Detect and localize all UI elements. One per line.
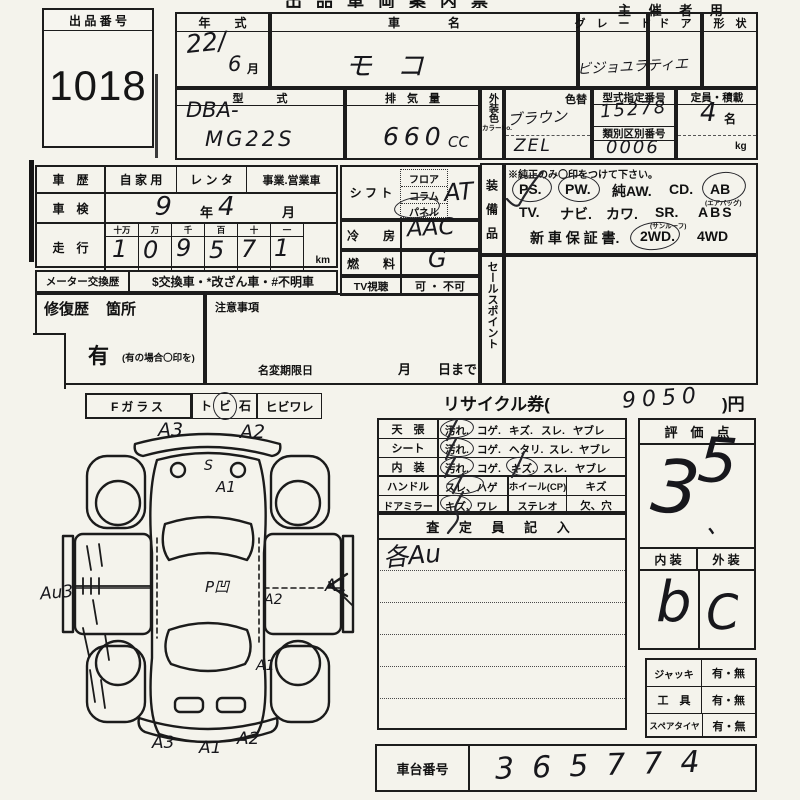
year-month-value: 6: [228, 52, 241, 76]
inspection-month-value: 4: [218, 192, 235, 222]
shift-floor: フロア: [401, 170, 447, 187]
tv-value: 可 ・ 不可: [400, 278, 478, 294]
diagram-side-au3: Au3: [39, 582, 74, 605]
mileage-label: 走 行: [37, 224, 106, 270]
inspection-month-unit: 月: [282, 202, 295, 221]
scan-artifact-line: [155, 74, 158, 158]
meter-row: メーター交換歴 $交換車・*改ざん車・#不明車: [35, 270, 338, 293]
interior-grade-value: b: [656, 570, 692, 635]
cropped-title: 出品車両案内票: [285, 0, 545, 8]
year-value: 22/: [185, 26, 228, 59]
grade-label: グ レ ー ド: [580, 14, 646, 32]
recycle-value: 9050: [621, 383, 703, 414]
equip-warranty: 新 車 保 証 書.: [530, 228, 619, 248]
model-value-1: DBA-: [186, 98, 239, 122]
tool-label: 工 具: [647, 687, 702, 713]
rename-day: 日まで: [438, 359, 477, 378]
assessor-entry: 各Au: [382, 534, 443, 575]
tools-box: ジャッキ 有・無 工 具 有・無 スペアタイヤ 有・無: [645, 658, 757, 738]
rename-deadline-label: 名変期限日: [258, 362, 313, 378]
crack-cell: ヒビワレ: [257, 393, 322, 419]
scan-artifact-bar: [29, 160, 34, 262]
cond-roof-b: コゲ.: [477, 423, 501, 438]
recycle-label-post: )円: [722, 390, 745, 415]
diagram-hood-s: S: [204, 458, 213, 474]
sales-point-label: セールスポイント: [484, 261, 500, 349]
diagram-front-a2: A2: [240, 421, 265, 443]
diagram-front-a3: A3: [158, 419, 183, 441]
door-cell: ド ア: [648, 12, 702, 88]
mileage-digit-6: 1: [274, 234, 289, 262]
cond-roof-c: キズ.: [509, 423, 533, 438]
equip-kawa: カワ.: [606, 204, 638, 224]
diagram-rear-right-a1: A1: [256, 658, 274, 674]
cond-seat-e: ヤブレ: [579, 442, 611, 457]
wheel-cp-label: ホイール(CP): [507, 477, 567, 495]
class-value: 0006: [606, 137, 660, 158]
tool-value: 有・無: [702, 687, 755, 713]
sales-point-label-cell: セールスポイント: [480, 255, 504, 385]
history-rental: レ ン タ: [177, 167, 247, 192]
assessor-line-4: [380, 666, 625, 667]
repair-label: 修復歴: [44, 298, 89, 319]
fglass-cell: Fガラス: [85, 393, 192, 419]
ac-value: AAC: [406, 214, 455, 242]
diagram-hood-a1: A1: [216, 478, 236, 496]
displacement-value: 660: [383, 122, 446, 151]
diagram-rear-a1: A1: [199, 738, 221, 758]
cond-roof-d: スレ.: [541, 423, 565, 438]
repair-has-label: 有: [88, 340, 109, 370]
equip-tv: TV.: [519, 204, 540, 220]
cond-roof-e: ヤブレ: [573, 423, 605, 438]
fglass-label: Fガラス: [87, 395, 190, 417]
meter-label: メーター交換歴: [37, 272, 130, 291]
ext-color-value: ブラウン: [506, 105, 567, 130]
diagram-rear-a2: A2: [237, 729, 259, 749]
sales-point-box: [504, 255, 758, 385]
equip-4wd: 4WD: [697, 228, 728, 244]
auction-number-box: 出 品 番 号 1018: [42, 8, 154, 148]
diagram-rear-a3: A3: [152, 733, 174, 753]
car-name-value: モ コ: [345, 44, 432, 83]
displacement-unit: CC: [448, 133, 469, 151]
diagram-right-a2: A2: [264, 592, 282, 608]
score-dot: 、: [706, 505, 730, 540]
repaint-label: 色替: [565, 91, 587, 107]
shift-label: シ フ ト: [342, 167, 400, 218]
wheel-cp-opt: キズ: [567, 477, 625, 495]
stone-chip-t: ト: [200, 397, 212, 414]
chassis-label: 車台番号: [377, 746, 470, 790]
crack-label: ヒビワレ: [258, 394, 321, 418]
recycle-label-pre: リサイクル券(: [443, 390, 550, 415]
fuel-row: 燃 料: [340, 250, 480, 276]
jack-label: ジャッキ: [647, 660, 702, 686]
equip-cd: CD.: [669, 181, 693, 197]
door-label: ド ア: [650, 14, 700, 32]
mileage-digit-3: 9: [176, 234, 191, 262]
capacity-value: 4: [700, 98, 717, 128]
cond-seat-d: スレ.: [549, 442, 573, 457]
history-label: 車 歴: [37, 167, 106, 192]
equipment-label-cell: 装 備 品: [480, 163, 504, 255]
mileage-digit-2: 0: [143, 236, 158, 264]
caution-label: 注意事項: [215, 299, 259, 315]
equip-abs: ABS: [698, 204, 734, 220]
auction-sheet: 出品車両案内票 主 催 者 用 出 品 番 号 1018 年 式 22/ 6 月…: [0, 0, 800, 800]
shift-value: AT: [443, 177, 474, 207]
jack-value: 有・無: [702, 660, 755, 686]
repair-box-notch: [33, 333, 66, 389]
ext-color-label-cell: 外装色 カラーNo.: [480, 88, 504, 160]
diagram-right-a1: A1: [325, 576, 347, 596]
fuel-value: G: [428, 245, 447, 273]
repair-sub-label: 箇所: [106, 298, 136, 319]
history-private: 自 家 用: [106, 167, 177, 192]
assessor-line-5: [380, 698, 625, 699]
color-no-value: ZEL: [514, 136, 552, 156]
cond-interior-label: 内 装: [379, 458, 439, 475]
history-business: 事業.営業車: [247, 167, 336, 192]
auction-number-label: 出 品 番 号: [44, 10, 152, 31]
spare-tire-value: 有・無: [702, 714, 755, 737]
handle-label: ハンドル: [379, 477, 439, 495]
equipment-label: 装 備 品: [482, 165, 502, 253]
car-name-label: 車 名: [272, 14, 576, 32]
exterior-grade-label: 外 装: [698, 549, 754, 571]
spare-tire-label: スペアタイヤ: [647, 714, 702, 737]
tv-row: TV視聴 可 ・ 不可: [340, 276, 480, 296]
inspection-year-value: 9: [154, 191, 173, 222]
mileage-unit: km: [316, 255, 330, 266]
ac-label: 冷 房: [342, 222, 400, 248]
cond-interior-e: ヤブレ: [575, 461, 607, 476]
diagram-center-dent: P凹: [205, 576, 229, 597]
displacement-label: 排 気 量: [347, 90, 478, 106]
cond-interior-d: スレ.: [543, 461, 567, 476]
assessor-line-2: [380, 602, 625, 603]
stone-chip-ishi: 石: [239, 397, 251, 414]
meter-options: $交換車・*改ざん車・#不明車: [130, 272, 336, 291]
interior-grade-label: 内 装: [640, 549, 698, 571]
month-unit: 月: [247, 60, 259, 77]
shape-label: 形 状: [704, 14, 756, 32]
car-diagram: [35, 418, 365, 763]
fuel-label: 燃 料: [342, 252, 400, 274]
capacity-unit: 名: [724, 110, 736, 127]
ext-color-label: 外装色: [485, 93, 500, 123]
inspection-label: 車 検: [37, 194, 106, 222]
cond-seat-b: コゲ.: [477, 442, 501, 457]
repair-note: (有の場合〇印を): [122, 350, 195, 364]
equip-navi: ナビ.: [560, 204, 592, 224]
score-digit-2: 5: [696, 423, 740, 499]
cond-roof-label: 天 張: [379, 420, 439, 438]
cond-interior-b: コゲ.: [477, 461, 501, 476]
equip-sr: SR.: [655, 204, 678, 220]
assessor-line-3: [380, 634, 625, 635]
color-no-label: カラーNo.: [482, 125, 502, 132]
mileage-digit-1: 1: [112, 235, 127, 263]
rename-month: 月: [398, 359, 411, 378]
shape-cell: 形 状: [702, 12, 758, 88]
auction-number-value: 1018: [44, 31, 152, 141]
capacity-label: 定員・積載: [678, 90, 756, 105]
cond-seat-c: ヘタリ.: [509, 442, 543, 457]
capacity-kg: kg: [735, 141, 747, 152]
tv-label: TV視聴: [342, 278, 400, 294]
mileage-digit-5: 7: [241, 235, 256, 263]
inspection-year-unit: 年: [200, 202, 213, 221]
model-value-2: MG22S: [205, 127, 294, 151]
mileage-digit-4: 5: [209, 236, 224, 264]
cond-seat-label: シート: [379, 439, 439, 457]
equip-aw: 純AW.: [612, 181, 652, 201]
condition-table: 天 張 汚れ. コゲ. キズ. スレ. ヤブレ シート 汚れ. コゲ. ヘタリ.…: [377, 418, 627, 513]
exterior-grade-value: C: [704, 584, 741, 642]
